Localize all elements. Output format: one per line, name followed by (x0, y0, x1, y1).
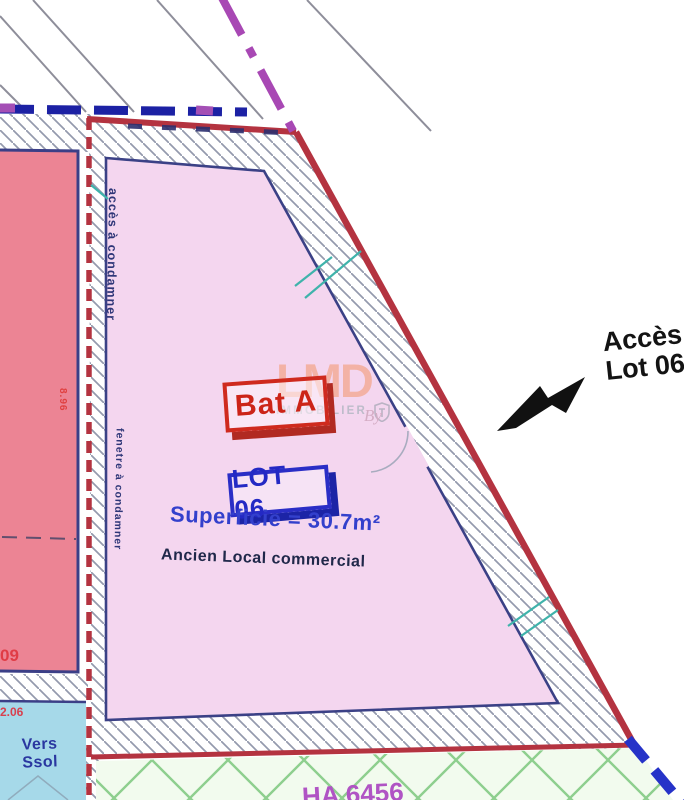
vers-ssol-note: Vers Ssol (21, 735, 58, 772)
hatch-strip-below-building (0, 674, 88, 701)
lot-number-left: 09 (0, 646, 19, 666)
purple-dashed-boundary (221, 0, 299, 142)
building-stamp: Bat A (222, 375, 329, 432)
watermark-by: By (364, 406, 382, 426)
parcel-ref-label: HA 6456 (301, 776, 404, 800)
dim-left-building: 8.96 (57, 388, 68, 434)
hatch-strip-top-left (0, 114, 92, 152)
access-arrow-icon (497, 377, 585, 431)
building-stamp-label: Bat A (234, 384, 318, 424)
vers-line1: Vers (21, 735, 57, 754)
site-plan-page: LMD IMMOBILIER By Bat A LOT 06 Superfici… (0, 0, 684, 800)
acces-lot-annotation: Accès Lot 06 (601, 320, 684, 386)
blue-area-top-border (0, 701, 86, 702)
dim-bottom-left: 2.06 (0, 705, 23, 719)
vers-line2: Ssol (22, 753, 58, 772)
